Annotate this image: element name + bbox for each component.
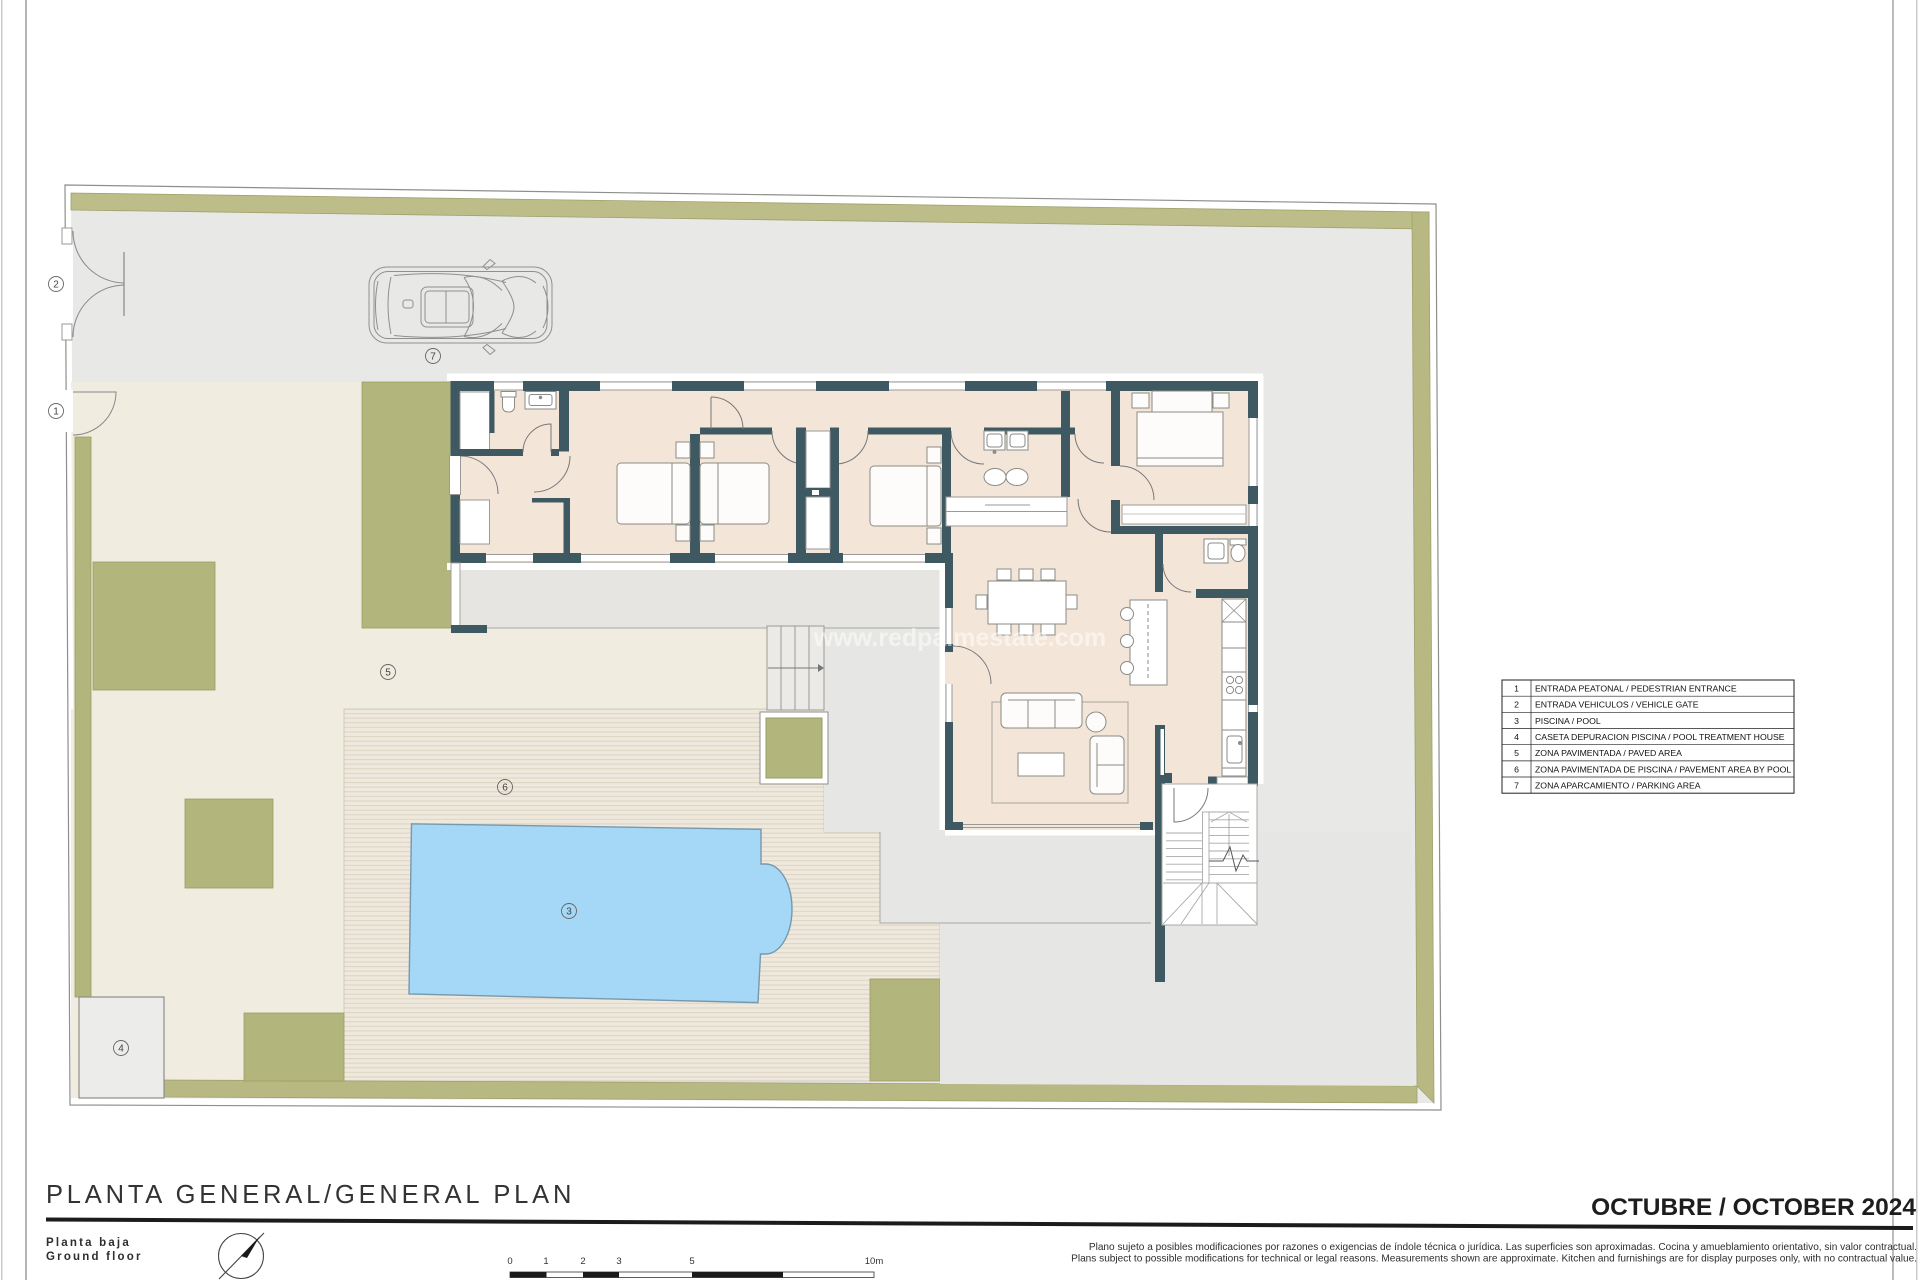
svg-text:4: 4 — [1514, 732, 1519, 742]
svg-text:ZONA PAVIMENTADA / PAVED AREA: ZONA PAVIMENTADA / PAVED AREA — [1535, 748, 1682, 758]
svg-text:2: 2 — [53, 280, 59, 291]
svg-text:1: 1 — [543, 1256, 548, 1267]
svg-text:2: 2 — [580, 1256, 585, 1267]
svg-text:1: 1 — [1514, 684, 1519, 694]
svg-text:PLANTA GENERAL/GENERAL PLAN: PLANTA GENERAL/GENERAL PLAN — [46, 1181, 575, 1209]
svg-text:ENTRADA VEHICULOS / VEHICLE GA: ENTRADA VEHICULOS / VEHICLE GATE — [1535, 700, 1699, 710]
svg-text:1: 1 — [53, 407, 59, 418]
svg-text:10m: 10m — [865, 1256, 884, 1267]
svg-text:6: 6 — [1514, 764, 1519, 774]
svg-text:0: 0 — [507, 1256, 512, 1267]
svg-text:ZONA APARCAMIENTO / PARKING AR: ZONA APARCAMIENTO / PARKING AREA — [1535, 781, 1701, 791]
svg-text:3: 3 — [1514, 716, 1519, 726]
svg-text:Plano sujeto a posibles modifi: Plano sujeto a posibles modificaciones p… — [1089, 1242, 1917, 1253]
svg-text:Plans subject to possible modi: Plans subject to possible modifications … — [1071, 1254, 1917, 1265]
svg-text:5: 5 — [689, 1256, 694, 1267]
svg-text:3: 3 — [566, 907, 572, 918]
svg-text:www.redpalmestate.com: www.redpalmestate.com — [813, 624, 1106, 652]
svg-text:ENTRADA PEATONAL / PEDESTRIAN: ENTRADA PEATONAL / PEDESTRIAN ENTRANCE — [1535, 684, 1737, 694]
svg-text:5: 5 — [1514, 748, 1519, 758]
svg-text:5: 5 — [385, 668, 391, 679]
svg-text:PISCINA / POOL: PISCINA / POOL — [1535, 716, 1601, 726]
svg-text:OCTUBRE / OCTOBER 2024: OCTUBRE / OCTOBER 2024 — [1591, 1194, 1916, 1221]
svg-text:7: 7 — [430, 352, 436, 363]
svg-text:ZONA PAVIMENTADA DE PISCINA /: ZONA PAVIMENTADA DE PISCINA / PAVEMENT A… — [1535, 764, 1791, 774]
svg-text:Ground floor: Ground floor — [46, 1251, 143, 1263]
svg-text:6: 6 — [502, 783, 508, 794]
svg-text:CASETA DEPURACION PISCINA / PO: CASETA DEPURACION PISCINA / POOL TREATME… — [1535, 732, 1785, 742]
svg-text:Planta baja: Planta baja — [46, 1237, 131, 1249]
svg-text:2: 2 — [1514, 700, 1519, 710]
svg-text:4: 4 — [118, 1044, 124, 1055]
svg-text:3: 3 — [616, 1256, 621, 1267]
svg-text:7: 7 — [1514, 781, 1519, 791]
